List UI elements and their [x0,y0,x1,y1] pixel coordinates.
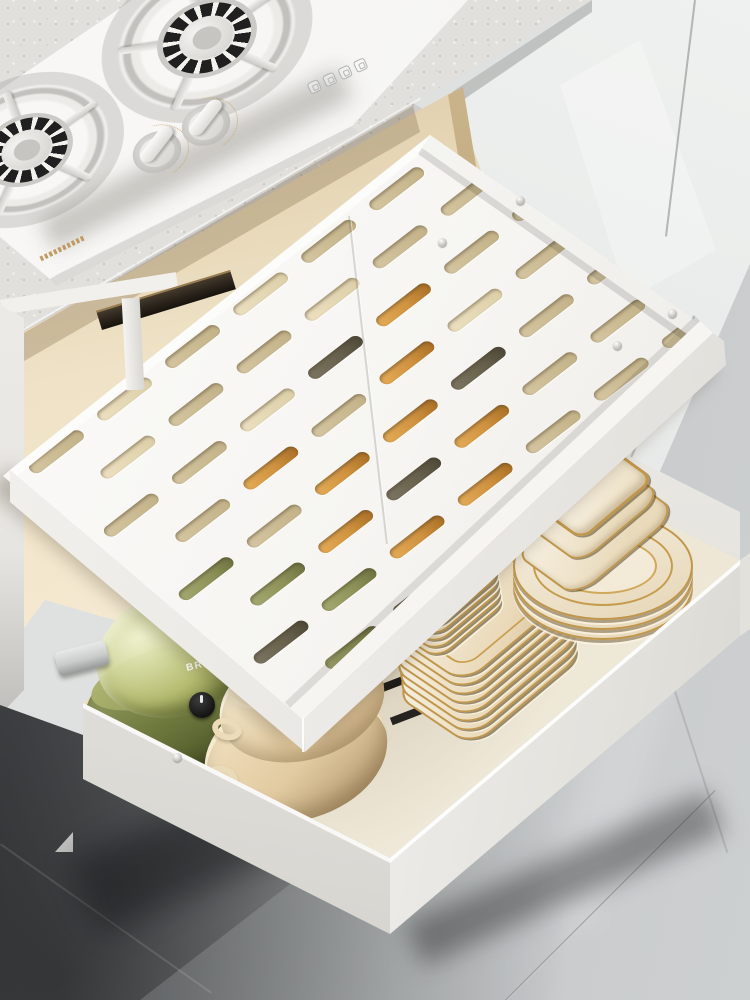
screw [613,341,622,350]
screw [516,196,525,205]
screw [173,753,182,762]
screw [438,238,447,247]
screw [668,309,677,318]
kitchen-product-photo: BRA [0,0,750,1000]
